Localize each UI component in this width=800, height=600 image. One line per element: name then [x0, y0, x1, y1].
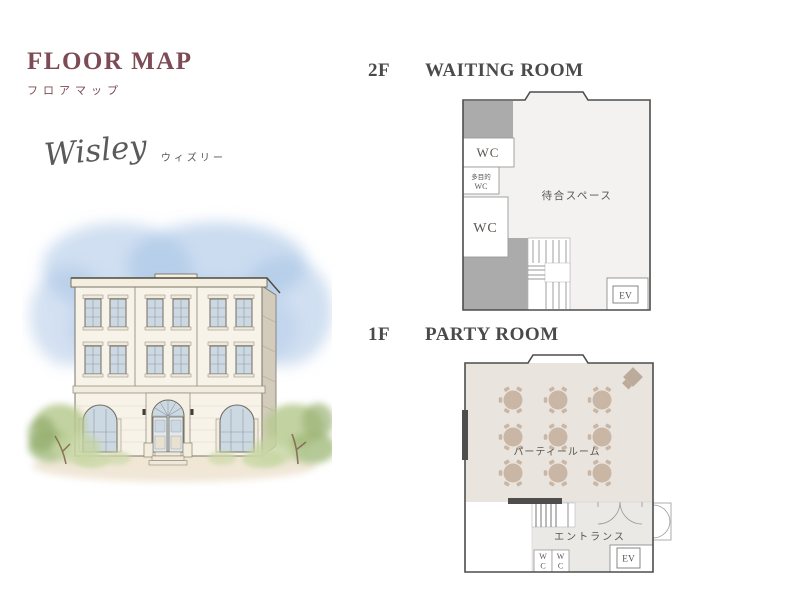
elevator-2f-label: EV [619, 292, 632, 302]
floor-1f-plan: パーティールーム エントランス W C W C [455, 350, 680, 580]
building-illustration [22, 196, 332, 496]
wall-fixture-left [462, 410, 468, 460]
multipurpose-wc-label-2: WC [475, 182, 488, 191]
elevator-1f-label: EV [622, 555, 635, 565]
floor-1f-level: 1F [368, 324, 425, 346]
wc-room-bottom: WC [463, 197, 508, 257]
wc-room-top: WC [463, 138, 514, 167]
building-facade [71, 274, 280, 465]
brand-logo: Wisley ウィズリー [44, 133, 226, 169]
multipurpose-wc-room: 多目的 WC [463, 167, 499, 194]
brand-kana-label: ウィズリー [161, 139, 226, 164]
floor-1f-name: PARTY ROOM [425, 324, 559, 346]
wc1-w: W [539, 552, 547, 561]
wc-box-2: W C [552, 550, 569, 572]
brand-script-logo: Wisley [43, 129, 149, 174]
party-tables [499, 386, 612, 486]
entrance-door [143, 393, 194, 465]
wc2-c: C [558, 562, 563, 571]
floor-2f-level: 2F [368, 60, 425, 82]
wc-top-label: WC [477, 145, 500, 160]
door-swing-symbol-exterior [653, 503, 671, 540]
floor-2f-name: WAITING ROOM [425, 60, 584, 82]
entrance-label: エントランス [554, 531, 626, 543]
wall-fixture-bottom [508, 498, 562, 504]
stairs-symbol [528, 238, 570, 310]
waiting-space-label: 待合スペース [542, 189, 613, 202]
floor-map-page: FLOOR MAP フロアマップ Wisley ウィズリー [0, 0, 800, 600]
closed-area-top [463, 101, 513, 138]
wc-bottom-label: WC [473, 221, 498, 236]
floor-1f-header: 1F PARTY ROOM [368, 324, 559, 346]
floor-2f-header: 2F WAITING ROOM [368, 60, 584, 82]
multipurpose-wc-label-1: 多目的 [471, 172, 491, 181]
wc1-c: C [540, 562, 545, 571]
wc-box-1: W C [534, 550, 552, 572]
stairs-symbol-1f [532, 503, 575, 527]
wc2-w: W [557, 552, 565, 561]
floor-2f-plan: WC 多目的 WC WC 待合スペース EV [455, 88, 655, 318]
elevator-1f: EV [610, 545, 653, 572]
page-subtitle: フロアマップ [27, 82, 193, 98]
page-title: FLOOR MAP [27, 48, 193, 76]
party-room-label: パーティールーム [513, 446, 600, 458]
page-header: FLOOR MAP フロアマップ [27, 48, 193, 98]
elevator-2f: EV [607, 278, 648, 310]
